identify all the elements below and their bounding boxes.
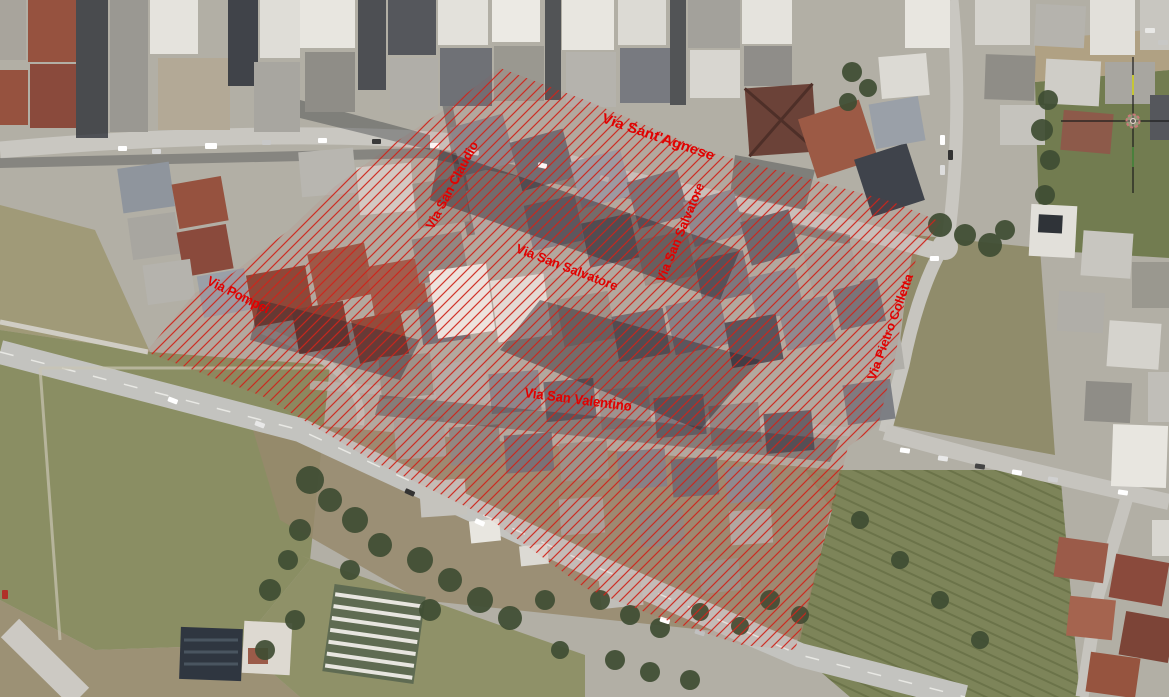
car [940, 135, 945, 145]
vacant-lot [890, 235, 1055, 455]
building [618, 0, 666, 45]
building [690, 50, 740, 98]
building [1085, 652, 1140, 697]
building [117, 162, 175, 214]
tree [296, 466, 324, 494]
building [1132, 262, 1169, 308]
crosshair-outer-circle [1127, 115, 1140, 128]
aerial-map-canvas[interactable]: Via Sant'Agnese Via San Claudio Via San … [0, 0, 1169, 697]
building [390, 58, 438, 110]
building [142, 259, 195, 305]
tree [971, 631, 989, 649]
car [262, 140, 271, 145]
building [438, 0, 488, 45]
building [1111, 424, 1168, 488]
tree [1035, 185, 1055, 205]
tree [851, 511, 869, 529]
tree [255, 640, 275, 660]
car [2, 590, 8, 599]
building [1060, 110, 1113, 154]
car [1158, 40, 1168, 45]
tree [407, 547, 433, 573]
alley-shadow [670, 0, 686, 105]
building [110, 0, 148, 132]
tree [498, 606, 522, 630]
car [930, 256, 939, 261]
building [28, 0, 76, 62]
building [300, 0, 355, 48]
solar-panel [1038, 214, 1063, 233]
building [620, 48, 670, 103]
building [878, 53, 929, 99]
tree [605, 650, 625, 670]
tree [340, 560, 360, 580]
building [1066, 596, 1116, 641]
building [1084, 381, 1132, 423]
building [358, 0, 386, 90]
building [0, 0, 26, 60]
building [150, 0, 198, 54]
alley-shadow [545, 0, 561, 100]
aerial-map[interactable]: Via Sant'Agnese Via San Claudio Via San … [0, 0, 1169, 697]
car [1145, 28, 1155, 33]
tree [551, 641, 569, 659]
building [1150, 95, 1169, 140]
tree [1040, 150, 1060, 170]
building [1148, 372, 1169, 422]
tree [535, 590, 555, 610]
building [1119, 611, 1169, 663]
building [127, 212, 180, 260]
building [1034, 4, 1086, 49]
tree [342, 507, 368, 533]
car [318, 138, 327, 143]
tree [680, 670, 700, 690]
building [869, 96, 926, 149]
building [1080, 230, 1133, 278]
tree [438, 568, 462, 592]
building [1106, 320, 1161, 370]
tree [931, 591, 949, 609]
greenhouse [322, 584, 425, 684]
tree [285, 610, 305, 630]
tree [259, 579, 281, 601]
car [118, 146, 127, 151]
building [905, 0, 950, 48]
building [158, 58, 230, 130]
building [984, 54, 1036, 101]
tree [839, 93, 857, 111]
building [1105, 62, 1155, 104]
building [1152, 520, 1169, 556]
building [0, 70, 28, 125]
tree [368, 533, 392, 557]
tree [842, 62, 862, 82]
tree [995, 220, 1015, 240]
car [372, 139, 381, 144]
building [1090, 0, 1135, 55]
building [688, 0, 740, 48]
tree [289, 519, 311, 541]
building [30, 64, 76, 128]
car [152, 149, 161, 154]
tree [1031, 119, 1053, 141]
alley-shadow [76, 0, 108, 138]
shed-roof [179, 627, 243, 681]
tree [318, 488, 342, 512]
building [742, 0, 792, 44]
tree [1038, 90, 1058, 110]
car [940, 165, 945, 175]
tree [891, 551, 909, 569]
tree [859, 79, 877, 97]
building [744, 46, 792, 86]
building [562, 0, 614, 50]
tree [467, 587, 493, 613]
building [492, 0, 540, 42]
building [305, 52, 355, 112]
tree [640, 662, 660, 682]
solar-shed [179, 627, 243, 681]
building [388, 0, 436, 55]
building [1109, 554, 1169, 607]
tree [278, 550, 298, 570]
building [1053, 537, 1108, 584]
building [254, 62, 300, 132]
building [975, 0, 1030, 45]
building [260, 0, 300, 58]
tree [954, 224, 976, 246]
building [228, 0, 258, 86]
tree [419, 599, 441, 621]
van [205, 143, 217, 149]
building [172, 176, 229, 229]
building [1057, 291, 1105, 333]
car [948, 150, 953, 160]
